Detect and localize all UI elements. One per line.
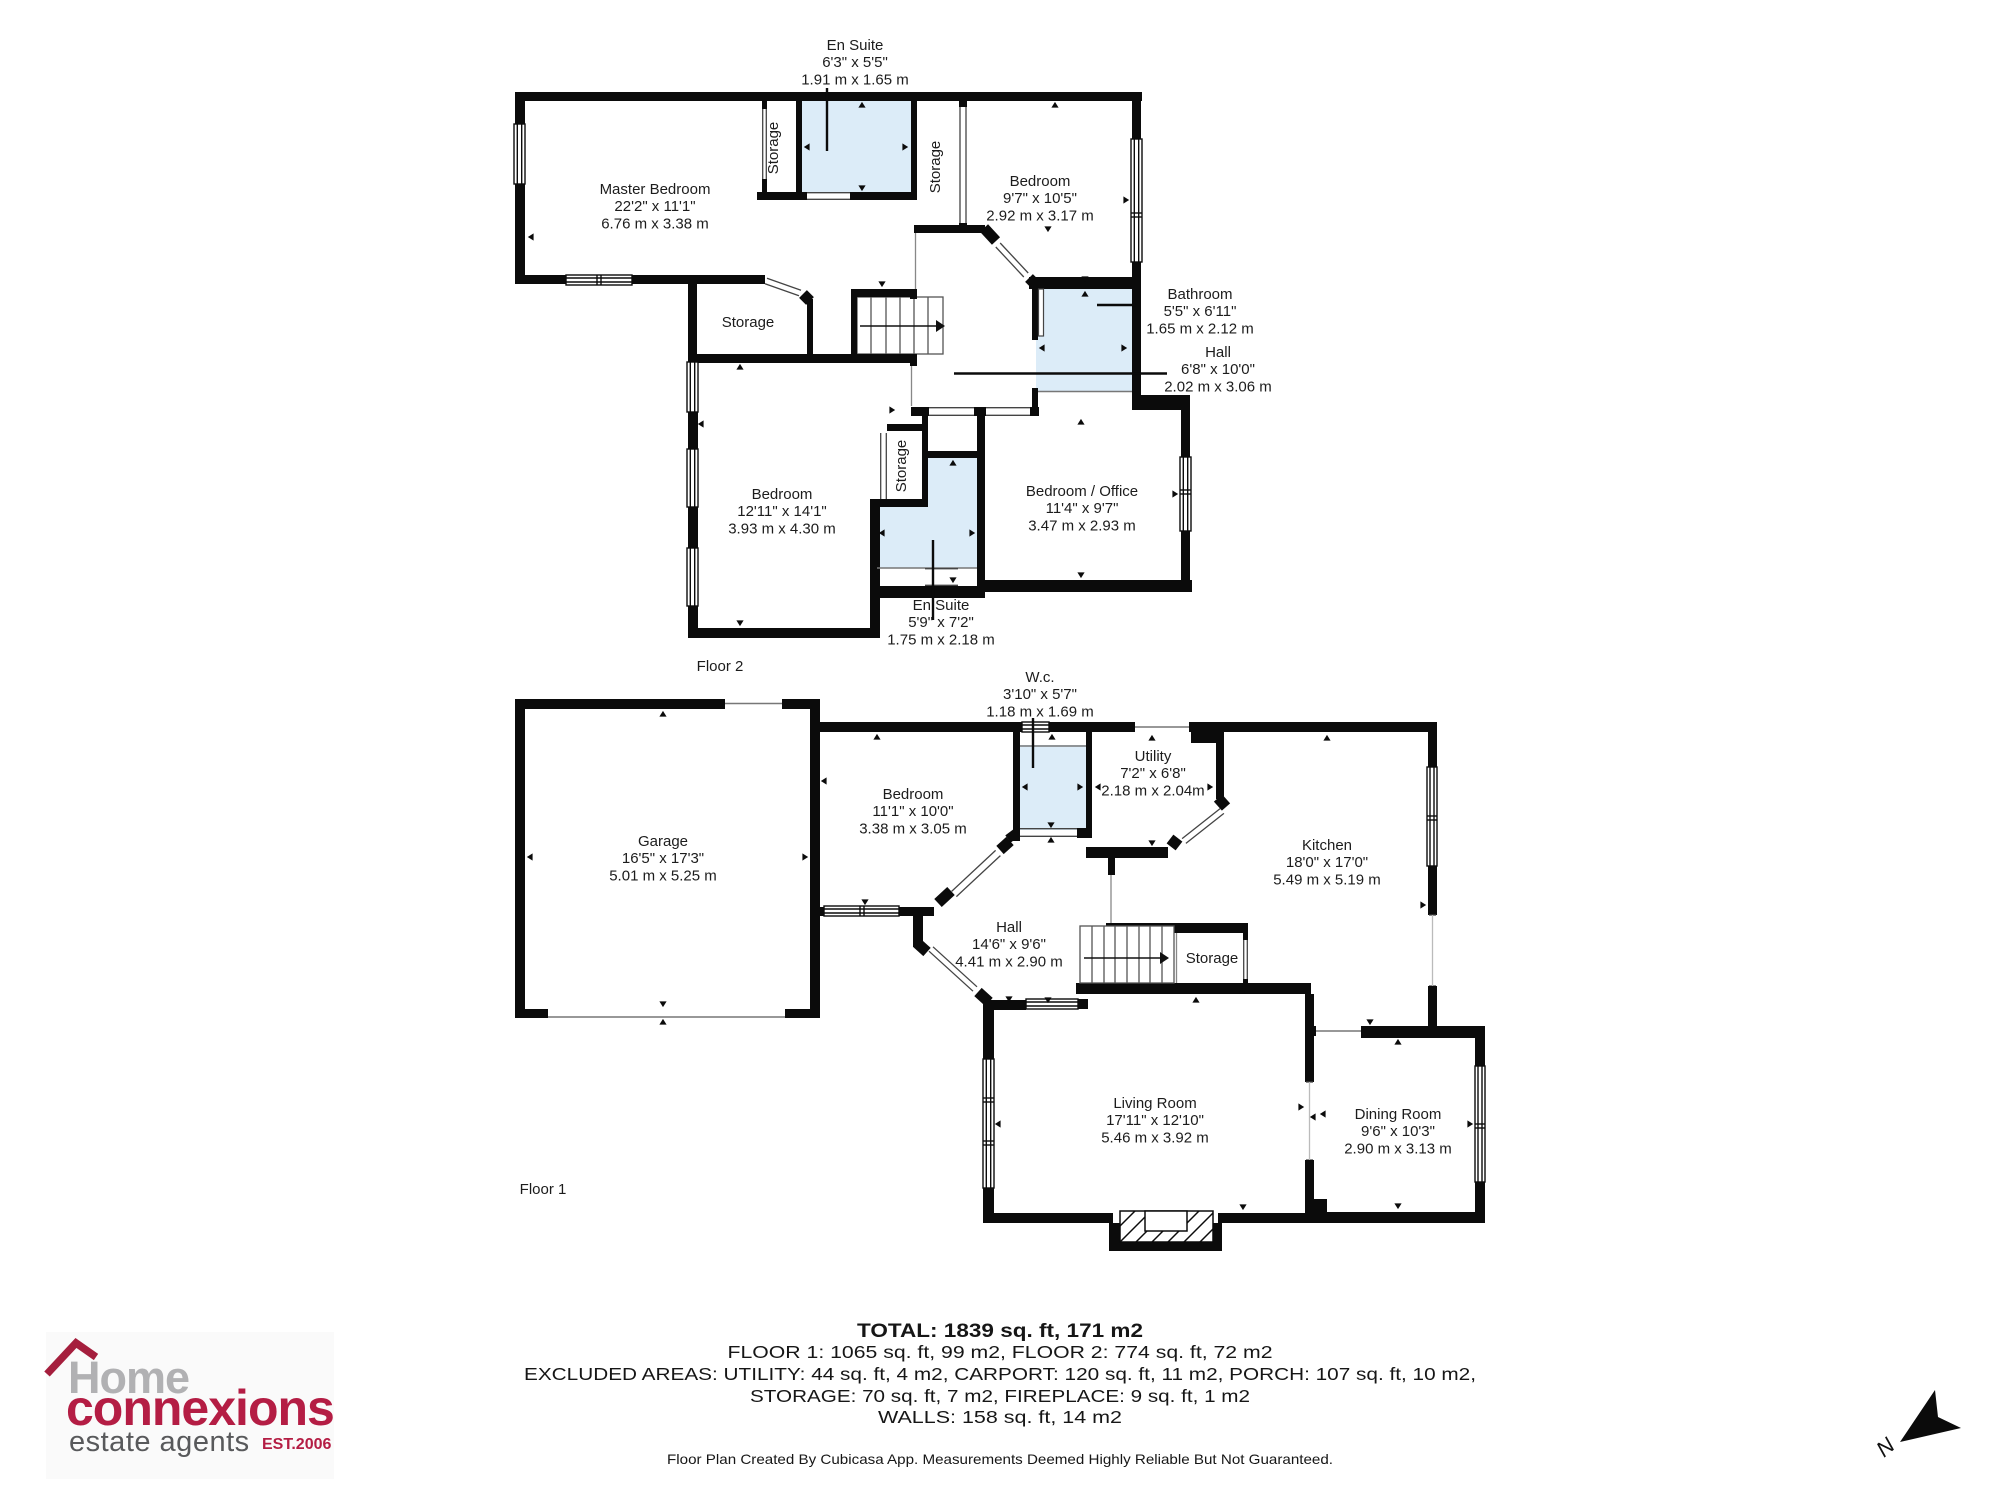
svg-text:Floor 2: Floor 2 (697, 658, 744, 675)
svg-text:Storage: Storage (765, 122, 782, 175)
svg-text:1.75 m x 2.18 m: 1.75 m x 2.18 m (887, 631, 995, 648)
svg-text:1.18 m x 1.69 m: 1.18 m x 1.69 m (986, 703, 1094, 720)
svg-text:Hall: Hall (996, 919, 1022, 936)
svg-text:5.46 m x 3.92 m: 5.46 m x 3.92 m (1101, 1129, 1209, 1146)
svg-text:9'6" x 10'3": 9'6" x 10'3" (1361, 1123, 1435, 1140)
svg-text:3.38 m x 3.05 m: 3.38 m x 3.05 m (859, 820, 967, 837)
svg-text:Garage: Garage (638, 833, 688, 850)
svg-text:2.92 m x 3.17 m: 2.92 m x 3.17 m (986, 207, 1094, 224)
svg-text:18'0" x 17'0": 18'0" x 17'0" (1286, 854, 1368, 871)
svg-text:17'11" x 12'10": 17'11" x 12'10" (1106, 1112, 1204, 1129)
svg-text:Floor Plan Created By Cubicasa: Floor Plan Created By Cubicasa App. Meas… (667, 1451, 1333, 1467)
svg-text:Storage: Storage (893, 440, 910, 493)
svg-text:STORAGE: 70 sq. ft, 7 m2, FIRE: STORAGE: 70 sq. ft, 7 m2, FIREPLACE: 9 s… (750, 1386, 1250, 1406)
svg-text:11'1" x 10'0": 11'1" x 10'0" (872, 803, 953, 820)
svg-text:1.65 m x 2.12 m: 1.65 m x 2.12 m (1146, 320, 1254, 337)
svg-text:Utility: Utility (1135, 748, 1172, 765)
svg-text:Living Room: Living Room (1113, 1095, 1196, 1112)
svg-text:Bedroom: Bedroom (1010, 173, 1071, 190)
svg-text:TOTAL: 1839 sq. ft, 171 m2: TOTAL: 1839 sq. ft, 171 m2 (857, 1321, 1143, 1342)
svg-text:3.93 m x 4.30 m: 3.93 m x 4.30 m (728, 520, 836, 537)
svg-text:Bathroom: Bathroom (1167, 286, 1232, 303)
svg-text:W.c.: W.c. (1025, 669, 1054, 686)
svg-text:22'2" x 11'1": 22'2" x 11'1" (614, 198, 695, 215)
svg-text:2.02 m x 3.06 m: 2.02 m x 3.06 m (1164, 378, 1272, 395)
svg-text:12'11" x 14'1": 12'11" x 14'1" (737, 503, 827, 520)
svg-text:Storage: Storage (1186, 950, 1239, 967)
svg-text:14'6" x 9'6": 14'6" x 9'6" (972, 936, 1046, 953)
svg-text:2.18 m x 2.04m: 2.18 m x 2.04m (1101, 782, 1204, 799)
svg-text:WALLS: 158 sq. ft, 14 m2: WALLS: 158 sq. ft, 14 m2 (878, 1407, 1122, 1427)
svg-text:Bedroom / Office: Bedroom / Office (1026, 483, 1138, 500)
svg-text:Bedroom: Bedroom (883, 786, 944, 803)
svg-text:6'3" x 5'5": 6'3" x 5'5" (822, 54, 888, 71)
svg-text:Floor 1: Floor 1 (520, 1181, 567, 1198)
svg-text:Hall: Hall (1205, 344, 1231, 361)
svg-text:6'8" x 10'0": 6'8" x 10'0" (1181, 361, 1255, 378)
svg-text:En Suite: En Suite (913, 597, 970, 614)
svg-text:9'7" x 10'5": 9'7" x 10'5" (1003, 190, 1077, 207)
svg-text:Storage: Storage (722, 314, 775, 331)
svg-text:3.47 m x 2.93 m: 3.47 m x 2.93 m (1028, 517, 1136, 534)
svg-text:EXCLUDED AREAS: UTILITY: 44 sq: EXCLUDED AREAS: UTILITY: 44 sq. ft, 4 m2… (524, 1364, 1476, 1384)
svg-text:4.41 m x 2.90 m: 4.41 m x 2.90 m (955, 953, 1063, 970)
svg-text:Dining Room: Dining Room (1355, 1106, 1442, 1123)
svg-text:5'5" x 6'11": 5'5" x 6'11" (1164, 303, 1237, 320)
svg-text:5.01 m x 5.25 m: 5.01 m x 5.25 m (609, 867, 717, 884)
svg-text:7'2" x 6'8": 7'2" x 6'8" (1120, 765, 1186, 782)
svg-text:EST.2006: EST.2006 (262, 1436, 331, 1453)
svg-text:16'5" x 17'3": 16'5" x 17'3" (622, 850, 704, 867)
svg-text:6.76 m x 3.38 m: 6.76 m x 3.38 m (601, 215, 709, 232)
svg-text:Master Bedroom: Master Bedroom (600, 181, 711, 198)
svg-text:5.49 m x 5.19 m: 5.49 m x 5.19 m (1273, 871, 1381, 888)
svg-text:5'9" x 7'2": 5'9" x 7'2" (908, 614, 974, 631)
svg-text:1.91 m x 1.65 m: 1.91 m x 1.65 m (801, 71, 909, 88)
svg-text:En Suite: En Suite (827, 37, 884, 54)
svg-text:FLOOR 1: 1065 sq. ft, 99 m2, F: FLOOR 1: 1065 sq. ft, 99 m2, FLOOR 2: 77… (728, 1342, 1273, 1362)
svg-text:Bedroom: Bedroom (752, 486, 813, 503)
svg-text:3'10" x 5'7": 3'10" x 5'7" (1003, 686, 1077, 703)
svg-text:2.90 m x 3.13 m: 2.90 m x 3.13 m (1344, 1140, 1452, 1157)
svg-text:Storage: Storage (927, 141, 944, 194)
svg-text:11'4" x 9'7": 11'4" x 9'7" (1046, 500, 1119, 517)
svg-text:estate agents: estate agents (69, 1426, 250, 1458)
svg-text:Kitchen: Kitchen (1302, 837, 1352, 854)
